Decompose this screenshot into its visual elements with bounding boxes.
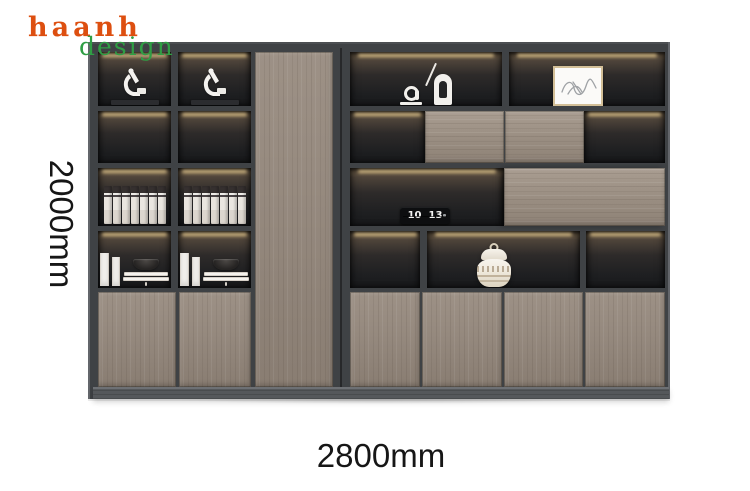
plinth (93, 387, 669, 399)
wood-door (585, 292, 665, 387)
arch-sculpture-icon (434, 74, 452, 105)
binder (202, 186, 210, 224)
open-shelf-niche (178, 231, 251, 288)
binder (211, 186, 219, 224)
clock-minutes: 13 (429, 211, 443, 221)
sculpture-base (400, 102, 422, 105)
sliding-wood-panel (425, 111, 504, 163)
book (100, 253, 109, 286)
books-and-bowl (100, 253, 169, 286)
open-shelf-niche (178, 168, 251, 226)
microscope-icon (200, 67, 230, 100)
binder (131, 186, 139, 224)
binder (140, 186, 148, 224)
bookcase-cabinet: 10 13 (88, 42, 670, 399)
sliding-wood-panel (505, 111, 584, 163)
jar-body (477, 259, 511, 287)
open-shelf-niche (98, 231, 171, 288)
floor-shadow (84, 399, 674, 406)
sliding-wood-panel (504, 168, 665, 226)
binders-row (184, 186, 246, 224)
ornament-tray (111, 100, 159, 105)
books-stack (123, 270, 169, 286)
binder (220, 186, 228, 224)
book (180, 253, 189, 286)
ring-sculpture-icon (404, 86, 419, 101)
clock-hours: 10 (408, 211, 422, 221)
microscope-ornament-icon (111, 67, 159, 105)
wood-door (504, 292, 583, 387)
binder (122, 186, 130, 224)
width-dimension-label: 2800mm (317, 437, 445, 475)
microscope-icon (120, 67, 150, 100)
binders-row (104, 186, 166, 224)
wood-door (350, 292, 420, 387)
wood-door (422, 292, 502, 387)
binder (184, 186, 192, 224)
open-shelf-niche (350, 111, 425, 163)
sketch-icon (558, 72, 598, 100)
microscope-ornament-icon (191, 67, 239, 105)
tall-wood-door (255, 52, 333, 387)
furniture-product-image: haanh design 2000mm 2800mm (0, 0, 750, 491)
ornament-tray (191, 100, 239, 105)
open-shelf-niche (350, 52, 502, 106)
binder (238, 186, 246, 224)
open-shelf-niche (178, 111, 251, 163)
books-and-bowl (180, 253, 249, 286)
open-shelf-niche (98, 111, 171, 163)
decor-bowl (133, 259, 159, 270)
binder (229, 186, 237, 224)
flip-clock: 10 13 (400, 207, 450, 224)
binder (104, 186, 112, 224)
binder (193, 186, 201, 224)
open-shelf-niche (178, 52, 251, 106)
open-shelf-niche (586, 231, 665, 288)
abstract-ring-sculpture (400, 86, 422, 105)
ceramic-jar-icon (477, 243, 511, 287)
binder (149, 186, 157, 224)
unit-seam (340, 48, 342, 387)
height-dimension-label: 2000mm (42, 160, 80, 288)
book (112, 257, 120, 286)
open-shelf-niche (427, 231, 580, 288)
open-shelf-niche (350, 231, 420, 288)
wood-door (179, 292, 251, 387)
decor-bowl (213, 259, 239, 270)
brand-tagline: design (79, 32, 175, 61)
open-shelf-niche: 10 13 (350, 168, 504, 226)
open-shelf-niche (509, 52, 665, 106)
open-shelf-niche (98, 168, 171, 226)
abstract-sculptures (400, 74, 452, 105)
clock-indicator-dot (443, 214, 446, 217)
binder (158, 186, 166, 224)
open-shelf-niche (584, 111, 665, 163)
wood-door (98, 292, 176, 387)
binder (113, 186, 121, 224)
books-stack (203, 270, 249, 286)
book (192, 257, 200, 286)
framed-artwork (553, 66, 603, 106)
